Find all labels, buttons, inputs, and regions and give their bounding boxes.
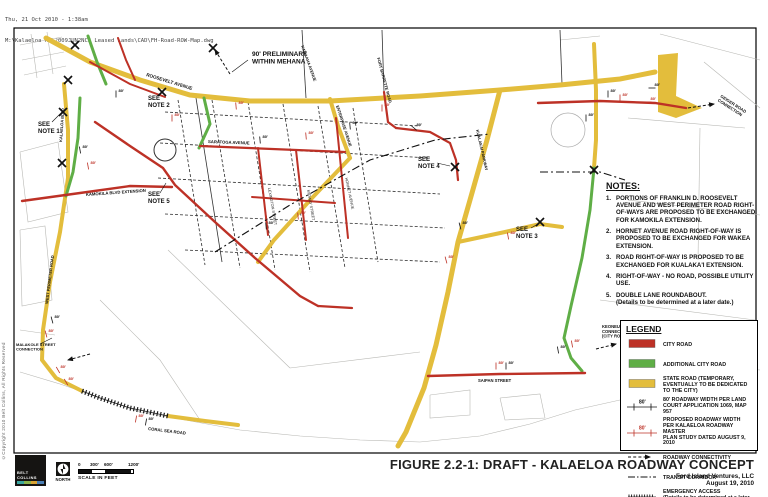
legend-item: CITY ROAD <box>626 337 752 355</box>
road-coral-sea-road <box>168 416 238 425</box>
width-tick-label: 80' <box>263 134 268 139</box>
width-tick <box>350 123 351 130</box>
svg-text:80': 80' <box>639 399 646 405</box>
map-label: KAMOKILA BLVD EXTENSION <box>86 188 146 197</box>
legend-symbol-swatch <box>626 377 659 395</box>
map-label: SEENOTE 3 <box>516 227 538 240</box>
scale-bar: 0300'600'1200' SCALE IN FEET <box>78 462 148 481</box>
width-tick <box>445 257 447 264</box>
parcel-line <box>560 36 600 40</box>
parcel-line <box>500 394 545 420</box>
north-arrow-icon <box>56 462 70 476</box>
legend-panel: LEGEND CITY ROADADDITIONAL CITY ROADSTAT… <box>620 320 758 451</box>
width-tick-label: 80' <box>353 120 358 125</box>
map-label: SEENOTE 4 <box>418 157 440 170</box>
connectivity-grid-line <box>185 250 440 262</box>
legend-item: 80'PROPOSED ROADWAY WIDTH PER KALAELOA R… <box>626 418 752 448</box>
width-tick <box>51 317 53 324</box>
road-grid-red-1 <box>258 148 268 235</box>
legend-symbol-swatch <box>626 337 659 355</box>
width-tick-label: 80' <box>449 254 454 259</box>
width-tick-label: 80' <box>561 344 566 349</box>
parcel-line <box>168 250 290 368</box>
map-label: SEENOTE 1 <box>38 122 60 135</box>
emergency-access-line <box>82 391 168 416</box>
parcel-line <box>31 34 37 78</box>
map-label: GEIGER ROADCONNECTION <box>717 94 747 118</box>
width-tick <box>145 419 146 426</box>
legend-label: 80' ROADWAY WIDTH PER LAND COURT APPLICA… <box>663 398 752 416</box>
connectivity-arrow <box>68 354 90 360</box>
legend-item: STATE ROAD (TEMPORARY, EVENTUALLY TO BE … <box>626 377 752 395</box>
width-tick-label: 80' <box>49 328 54 333</box>
width-tick <box>56 367 60 373</box>
width-tick-label: 80' <box>499 360 504 365</box>
width-tick <box>571 341 572 348</box>
legend-label: CITY ROAD <box>663 343 692 349</box>
title-block: FIGURE 2.2-1: DRAFT - KALAELOA ROADWAY C… <box>390 457 754 487</box>
parcel-line <box>24 66 66 75</box>
road-saipan-street <box>428 373 585 376</box>
road-roosevelt-red-overlay <box>90 62 165 97</box>
width-tick-label: 80' <box>623 92 628 97</box>
map-label: CORAL SEA ROAD <box>148 426 186 436</box>
legend-item: ADDITIONAL CITY ROAD <box>626 357 752 375</box>
connectivity-arrow <box>596 344 616 349</box>
width-tick-label: 80' <box>301 210 306 215</box>
width-tick-label: 80' <box>55 314 60 319</box>
parcel-line <box>22 52 64 60</box>
note-item: 1.PORTIONS OF FRANKLIN D. ROOSEVELT AVEN… <box>606 195 762 224</box>
state-road-flag <box>658 53 702 118</box>
transit-corridor-line <box>540 172 625 180</box>
width-tick-label: 80' <box>589 112 594 117</box>
tank-circle <box>551 113 585 147</box>
width-tick-label: 80' <box>509 360 514 365</box>
figure-date: August 19, 2010 <box>390 480 754 487</box>
roundabout-circle <box>154 139 176 161</box>
map-label: KALAELOA BLVD <box>58 108 65 142</box>
notes-panel: NOTES: 1.PORTIONS OF FRANKLIN D. ROOSEVE… <box>606 181 762 311</box>
width-tick <box>557 347 558 354</box>
width-tick <box>236 103 237 110</box>
note-item: 5.DOUBLE LANE ROUNDABOUT. (Details to be… <box>606 292 762 306</box>
width-tick-label: 80' <box>91 160 96 165</box>
width-tick-label: 80' <box>119 88 124 93</box>
scale-bar-graphic <box>78 469 134 474</box>
road-note4-red <box>396 128 458 180</box>
note-item: 2.HORNET AVENUE ROAD RIGHT-OF-WAY IS PRO… <box>606 228 762 250</box>
notes-title: NOTES: <box>606 181 762 191</box>
road-artery-east-spur <box>318 306 352 308</box>
map-label: 90' PRELIMINARYWITHIN MEHANA <box>252 51 308 65</box>
parcel-line <box>20 142 68 222</box>
scale-tick-labels: 0300'600'1200' <box>78 462 148 468</box>
legend-symbol-width_red: 80' <box>626 424 659 442</box>
emergency-access-hatch <box>82 391 168 416</box>
connectivity-grid-line <box>165 112 420 126</box>
width-tick <box>79 147 80 154</box>
width-tick-label: 80' <box>651 96 656 101</box>
map-label: SAIPAN STREET <box>478 378 512 383</box>
width-tick-label: 80' <box>149 416 154 421</box>
map-label: WEST PERIMETER ROAD <box>44 255 55 304</box>
width-tick-label: 80' <box>417 122 422 127</box>
width-tick-label: 80' <box>139 413 144 418</box>
width-tick <box>87 163 88 170</box>
legend-symbol-swatch <box>626 357 659 375</box>
connectivity-grid-line <box>283 104 310 272</box>
width-tick-label: 80' <box>575 338 580 343</box>
label-leader <box>232 60 248 72</box>
notes-list: 1.PORTIONS OF FRANKLIN D. ROOSEVELT AVEN… <box>606 195 762 306</box>
map-label: MALAKOLE STREETCONNECTION <box>16 342 56 352</box>
map-label: SARATOGA AVENUE <box>208 139 250 145</box>
existing-road <box>560 30 562 84</box>
legend-symbol-width_black: 80' <box>626 398 659 416</box>
width-tick-label: 80' <box>61 364 66 369</box>
north-label: NORTH <box>55 477 71 482</box>
drawing-sheet: Thu, 21 Oct 2010 - 1:38am M:\Kalaeloa MP… <box>0 0 768 497</box>
figure-company: Ford Island Ventures, LLC <box>390 473 754 480</box>
road-fort-barrette-road-south <box>594 44 596 168</box>
legend-symbol-hatch <box>626 490 659 497</box>
figure-title: FIGURE 2.2-1: DRAFT - KALAELOA ROADWAY C… <box>390 457 754 472</box>
width-tick-label: 80' <box>611 88 616 93</box>
legend-label: EMERGENCY ACCESS (Details to be determin… <box>663 490 752 497</box>
connectivity-grid-line <box>212 100 240 268</box>
legend-label: STATE ROAD (TEMPORARY, EVENTUALLY TO BE … <box>663 377 747 395</box>
connectivity-grid-line <box>353 108 378 262</box>
width-tick-label: 80' <box>655 82 660 87</box>
connectivity-grid-line <box>178 100 205 265</box>
note-item: 3.ROAD RIGHT-OF-WAY IS PROPOSED TO BE EX… <box>606 254 762 268</box>
legend-item: 80'80' ROADWAY WIDTH PER LAND COURT APPL… <box>626 398 752 416</box>
belt-collins-logo: BELT COLLINS <box>15 455 46 486</box>
road-saratoga-avenue <box>200 146 345 152</box>
width-tick-label: 80' <box>309 130 314 135</box>
width-tick-label: 80' <box>463 220 468 225</box>
legend-label: ADDITIONAL CITY ROAD <box>663 363 726 369</box>
width-tick <box>260 137 261 144</box>
svg-text:80': 80' <box>639 425 646 431</box>
width-tick <box>306 133 307 140</box>
note-item: 4.RIGHT-OF-WAY - NO ROAD, POSSIBLE UTILI… <box>606 273 762 287</box>
width-tick-label: 80' <box>239 100 244 105</box>
connectivity-arrow <box>215 50 230 74</box>
width-tick-label: 80' <box>175 112 180 117</box>
width-tick <box>135 416 136 423</box>
width-tick-label: 80' <box>83 144 88 149</box>
legend-title: LEGEND <box>626 324 752 334</box>
map-label: SEENOTE 2 <box>148 96 170 109</box>
parcel-line <box>430 390 470 418</box>
north-arrow: NORTH <box>55 462 71 482</box>
parcel-line <box>628 118 745 128</box>
width-tick <box>507 233 508 240</box>
scale-caption: SCALE IN FEET <box>78 476 148 481</box>
map-label: SEENOTE 5 <box>148 192 170 205</box>
logo-stripe <box>17 481 44 484</box>
parcel-line <box>290 352 420 368</box>
logo-text: BELT COLLINS <box>17 470 46 480</box>
width-tick-label: 80' <box>69 376 74 381</box>
legend-item: EMERGENCY ACCESS (Details to be determin… <box>626 490 752 497</box>
legend-label: PROPOSED ROADWAY WIDTH PER KALAELOA ROAD… <box>663 418 752 448</box>
road-roosevelt-avenue <box>46 38 655 101</box>
